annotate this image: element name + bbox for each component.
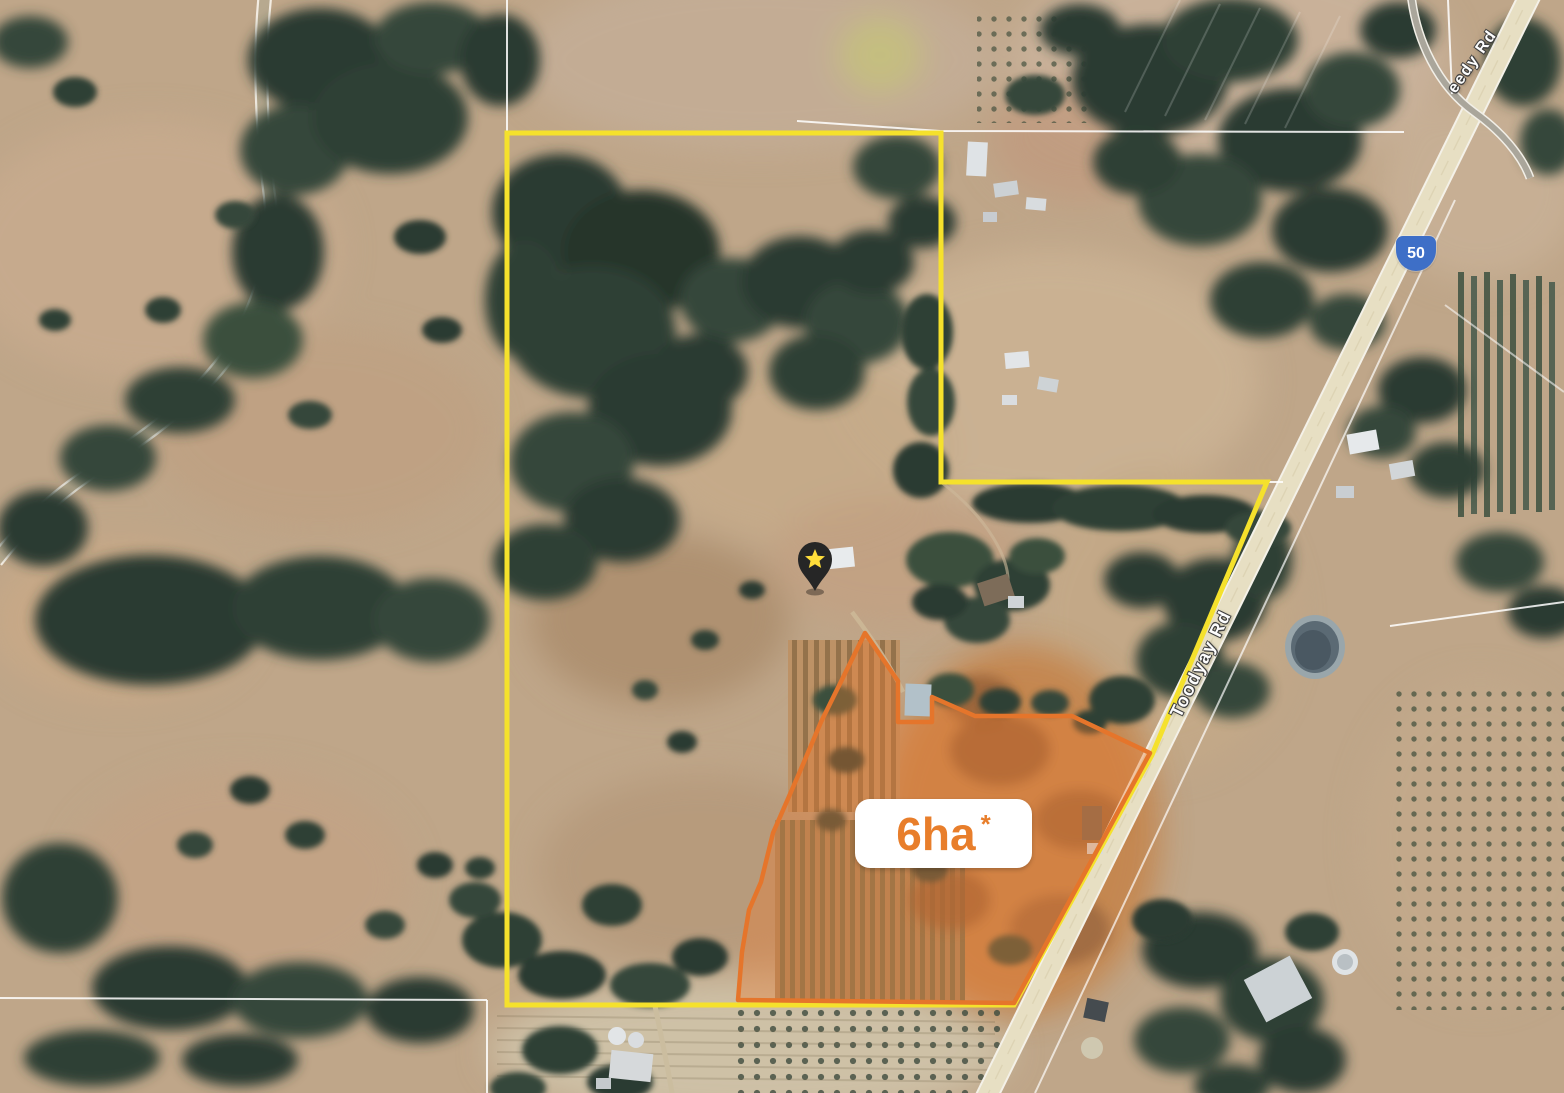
satellite-imagery	[0, 0, 1564, 1093]
route-shield-number: 50	[1407, 245, 1425, 263]
map-canvas: 6ha * Toodyay Rd eedy Rd 50	[0, 0, 1564, 1093]
area-badge-asterisk: *	[981, 809, 991, 840]
dam-pond	[1285, 615, 1345, 679]
area-badge: 6ha *	[855, 799, 1032, 868]
area-badge-value: 6ha	[896, 811, 975, 857]
